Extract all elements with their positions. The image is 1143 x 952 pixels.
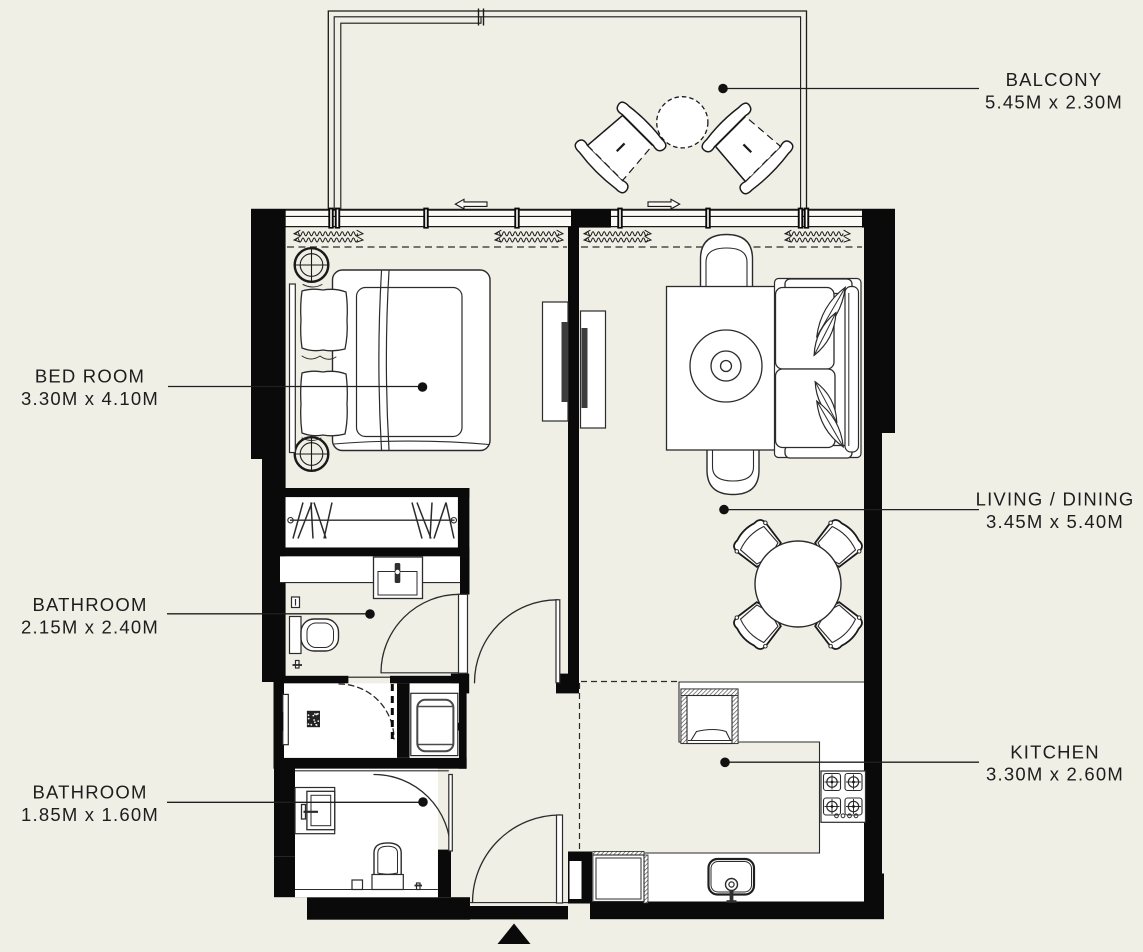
svg-text:LIVING / DINING: LIVING / DINING — [976, 489, 1135, 510]
svg-text:1.85M x 1.60M: 1.85M x 1.60M — [21, 804, 159, 825]
svg-text:BALCONY: BALCONY — [1006, 69, 1103, 90]
svg-text:2.15M x 2.40M: 2.15M x 2.40M — [21, 616, 159, 637]
svg-text:3.30M x 4.10M: 3.30M x 4.10M — [21, 388, 159, 409]
svg-text:BATHROOM: BATHROOM — [32, 782, 147, 803]
svg-text:BED ROOM: BED ROOM — [35, 366, 145, 387]
svg-text:5.45M x 2.30M: 5.45M x 2.30M — [985, 91, 1123, 112]
svg-text:KITCHEN: KITCHEN — [1010, 741, 1100, 762]
svg-text:BATHROOM: BATHROOM — [32, 594, 147, 615]
svg-text:3.30M x 2.60M: 3.30M x 2.60M — [986, 764, 1124, 785]
svg-text:3.45M x 5.40M: 3.45M x 5.40M — [986, 511, 1124, 532]
